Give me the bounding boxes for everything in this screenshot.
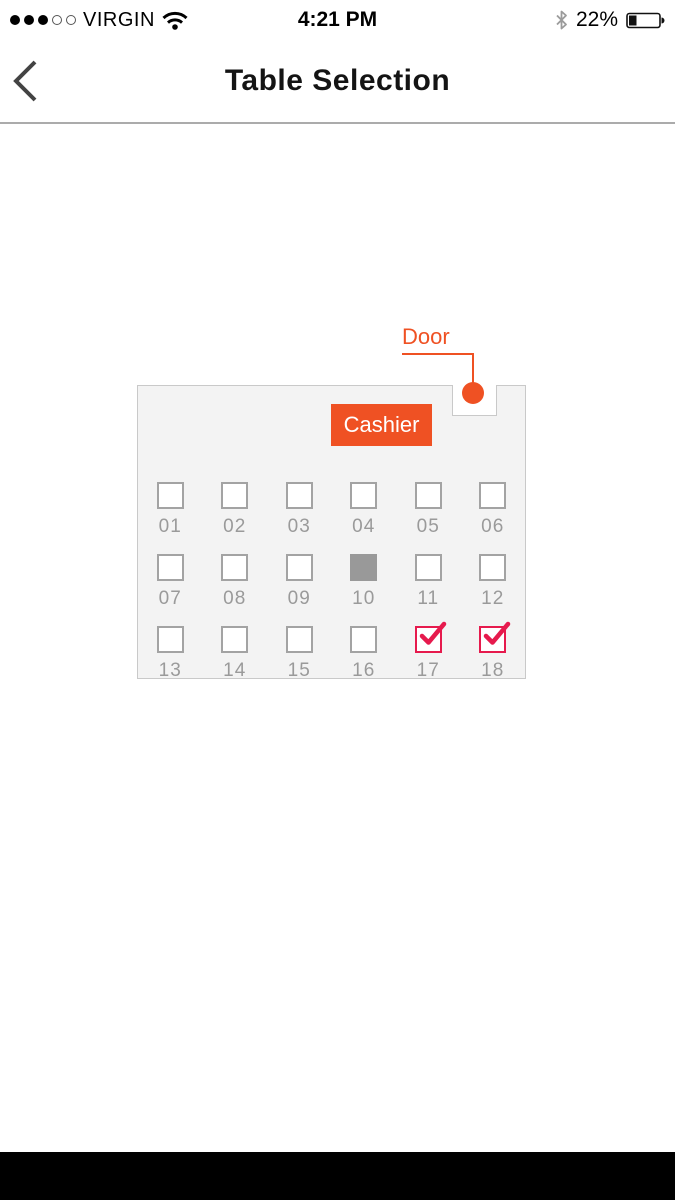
table-checkbox-18[interactable] (479, 626, 506, 653)
carrier-label: VIRGIN (83, 9, 155, 32)
table-number: 01 (159, 516, 182, 538)
signal-dot (10, 15, 20, 25)
table-cell-02[interactable]: 02 (203, 482, 268, 538)
table-checkbox-06[interactable] (479, 482, 506, 509)
signal-dot (52, 15, 62, 25)
back-button[interactable] (12, 58, 46, 104)
signal-dot (24, 15, 34, 25)
signal-dot (66, 15, 76, 25)
table-checkbox-10[interactable] (350, 554, 377, 581)
signal-dot (38, 15, 48, 25)
table-checkbox-08[interactable] (221, 554, 248, 581)
table-checkbox-03[interactable] (286, 482, 313, 509)
table-checkbox-12[interactable] (479, 554, 506, 581)
table-cell-13[interactable]: 13 (138, 626, 203, 682)
table-number: 11 (417, 588, 439, 610)
chevron-left-icon (12, 59, 38, 103)
table-number: 18 (481, 660, 504, 682)
table-checkbox-05[interactable] (415, 482, 442, 509)
nav-bar: Table Selection (0, 40, 675, 124)
table-checkbox-04[interactable] (350, 482, 377, 509)
door-callout-line-horizontal (402, 353, 474, 355)
bottom-bar (0, 1152, 675, 1200)
table-number: 17 (417, 660, 440, 682)
cashier-button[interactable]: Cashier (331, 404, 432, 446)
table-cell-10[interactable]: 10 (332, 554, 397, 610)
floor-plan: Cashier 01 02 03 04 (137, 385, 526, 679)
table-checkbox-07[interactable] (157, 554, 184, 581)
table-cell-14[interactable]: 14 (203, 626, 268, 682)
table-cell-06[interactable]: 06 (461, 482, 526, 538)
table-checkbox-09[interactable] (286, 554, 313, 581)
table-cell-07[interactable]: 07 (138, 554, 203, 610)
table-number: 06 (481, 516, 504, 538)
table-cell-08[interactable]: 08 (203, 554, 268, 610)
table-checkbox-01[interactable] (157, 482, 184, 509)
table-cell-03[interactable]: 03 (267, 482, 332, 538)
table-checkbox-11[interactable] (415, 554, 442, 581)
signal-strength-dots (10, 15, 76, 25)
table-cell-12[interactable]: 12 (461, 554, 526, 610)
table-cell-17[interactable]: 17 (396, 626, 461, 682)
table-cell-15[interactable]: 15 (267, 626, 332, 682)
table-checkbox-15[interactable] (286, 626, 313, 653)
table-cell-11[interactable]: 11 (396, 554, 461, 610)
battery-percent-label: 22% (576, 8, 618, 32)
table-number: 12 (481, 588, 504, 610)
table-checkbox-16[interactable] (350, 626, 377, 653)
checkmark-icon (481, 621, 512, 650)
door-marker-dot (462, 382, 484, 404)
table-number: 08 (223, 588, 246, 610)
battery-icon (626, 12, 665, 29)
wifi-icon (162, 11, 188, 30)
tables-grid: 01 02 03 04 05 (138, 482, 525, 682)
bluetooth-icon (555, 10, 568, 30)
table-checkbox-02[interactable] (221, 482, 248, 509)
table-checkbox-17[interactable] (415, 626, 442, 653)
table-cell-16[interactable]: 16 (332, 626, 397, 682)
table-cell-09[interactable]: 09 (267, 554, 332, 610)
table-number: 09 (288, 588, 311, 610)
table-number: 14 (223, 660, 246, 682)
table-checkbox-14[interactable] (221, 626, 248, 653)
table-number: 03 (288, 516, 311, 538)
table-number: 15 (288, 660, 311, 682)
door-label: Door (402, 324, 450, 350)
table-cell-01[interactable]: 01 (138, 482, 203, 538)
status-bar: VIRGIN 4:21 PM 22% (0, 0, 675, 40)
table-checkbox-13[interactable] (157, 626, 184, 653)
page-title: Table Selection (0, 40, 675, 122)
table-number: 13 (159, 660, 182, 682)
table-number: 04 (352, 516, 375, 538)
table-number: 02 (223, 516, 246, 538)
table-cell-18[interactable]: 18 (461, 626, 526, 682)
table-number: 10 (352, 588, 375, 610)
checkmark-icon (417, 621, 448, 650)
table-cell-05[interactable]: 05 (396, 482, 461, 538)
table-cell-04[interactable]: 04 (332, 482, 397, 538)
table-number: 16 (352, 660, 375, 682)
table-number: 05 (417, 516, 440, 538)
table-number: 07 (159, 588, 182, 610)
